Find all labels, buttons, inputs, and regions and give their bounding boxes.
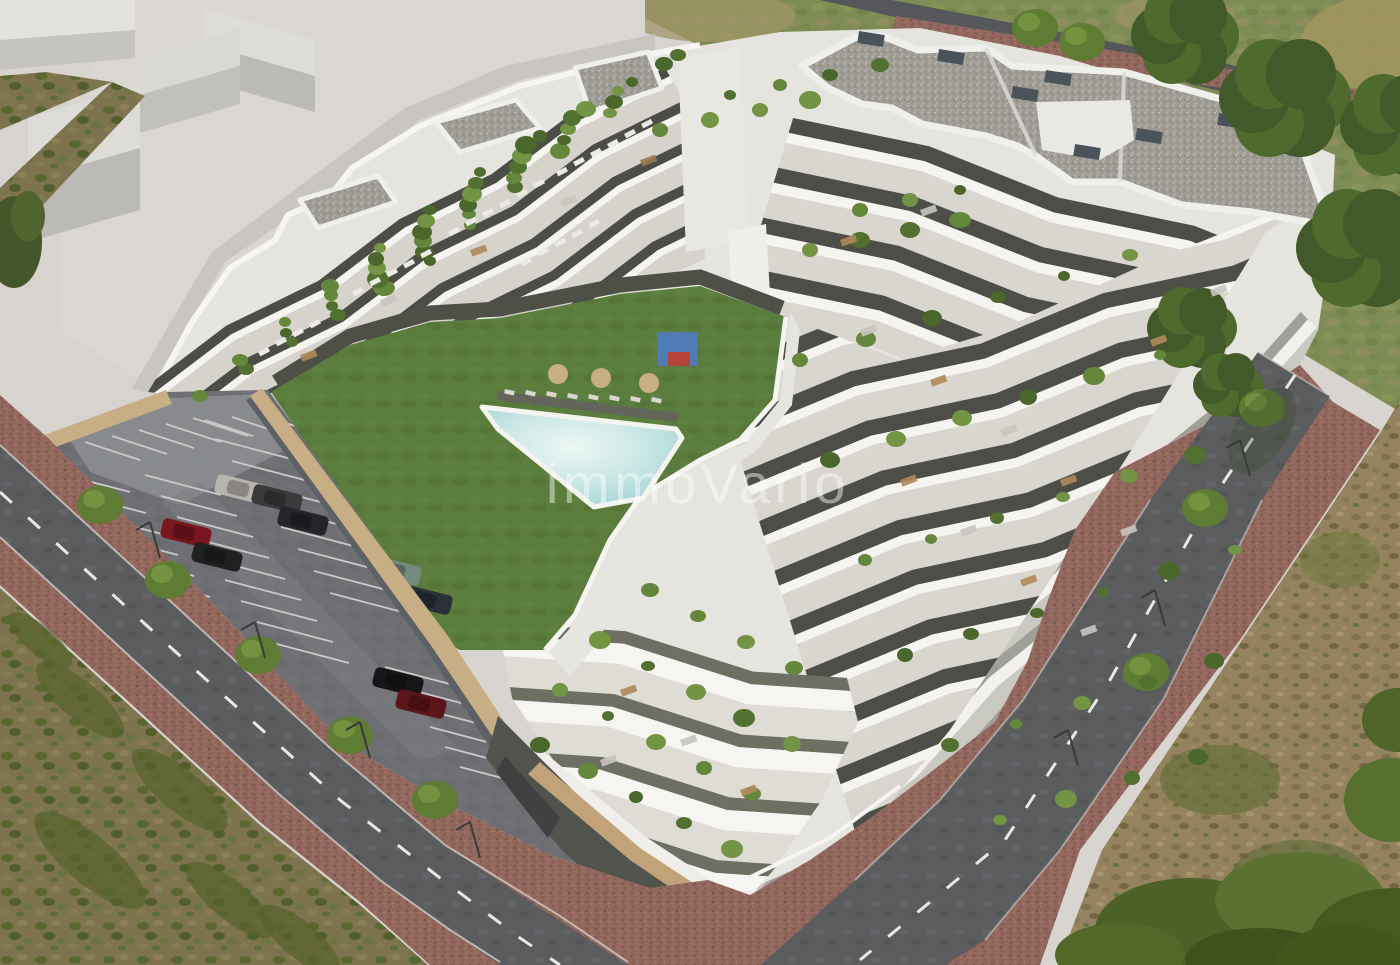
- svg-text:immoVario: immoVario: [546, 452, 850, 515]
